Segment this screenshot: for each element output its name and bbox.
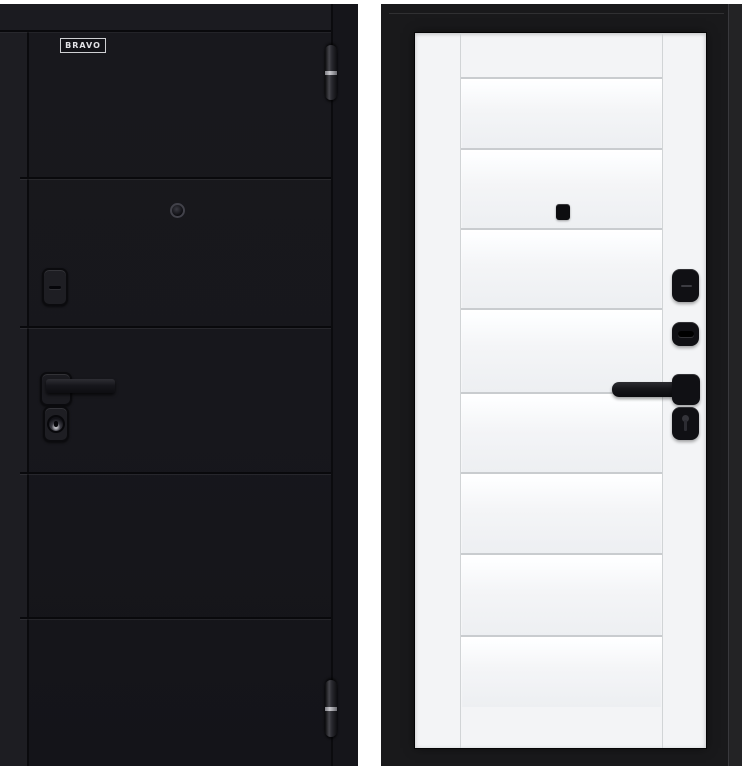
glass-panel bbox=[461, 392, 662, 472]
door-interior-view bbox=[381, 4, 742, 766]
keyhole-tail bbox=[684, 420, 687, 431]
door-top-rail bbox=[0, 4, 358, 32]
keyhole-slot bbox=[49, 286, 61, 289]
door-handle-lever bbox=[46, 379, 115, 393]
keyhole-slot bbox=[681, 285, 692, 287]
peephole bbox=[170, 203, 185, 218]
panel-groove bbox=[20, 617, 331, 619]
product-image: BRAVO bbox=[0, 0, 742, 773]
hinge-ring bbox=[325, 707, 337, 711]
glass-panel bbox=[461, 77, 662, 148]
frame-right-edge bbox=[728, 4, 742, 766]
door-side-edge bbox=[0, 4, 29, 766]
glass-panel bbox=[461, 635, 662, 707]
door-hinge-edge bbox=[333, 4, 358, 766]
column-bottom-rail bbox=[461, 707, 662, 748]
lock-cylinder-escutcheon bbox=[672, 407, 699, 440]
frame-bevel-highlight bbox=[389, 13, 724, 14]
hinge-bottom bbox=[325, 680, 337, 737]
panel-groove bbox=[20, 472, 331, 474]
panel-groove bbox=[20, 326, 331, 328]
door-exterior-view: BRAVO bbox=[0, 4, 358, 766]
lock-escutcheon-upper bbox=[42, 268, 68, 306]
lock-escutcheon-upper bbox=[672, 269, 699, 302]
glass-panel bbox=[461, 472, 662, 553]
peephole-cover bbox=[556, 204, 570, 220]
panel-groove bbox=[20, 177, 331, 179]
brand-badge: BRAVO bbox=[60, 38, 106, 53]
door-handle-lever bbox=[612, 382, 678, 397]
hinge-ring bbox=[325, 71, 337, 75]
lock-cylinder-escutcheon bbox=[43, 406, 69, 442]
glass-panel bbox=[461, 228, 662, 308]
thumbturn-escutcheon bbox=[672, 322, 699, 346]
glass-panel bbox=[461, 308, 662, 392]
thumbturn bbox=[678, 331, 694, 337]
glass-panel bbox=[461, 553, 662, 635]
handle-rose bbox=[672, 374, 700, 405]
hinge-top bbox=[325, 45, 337, 100]
keyhole bbox=[54, 421, 58, 427]
column-top-rail bbox=[461, 33, 662, 77]
